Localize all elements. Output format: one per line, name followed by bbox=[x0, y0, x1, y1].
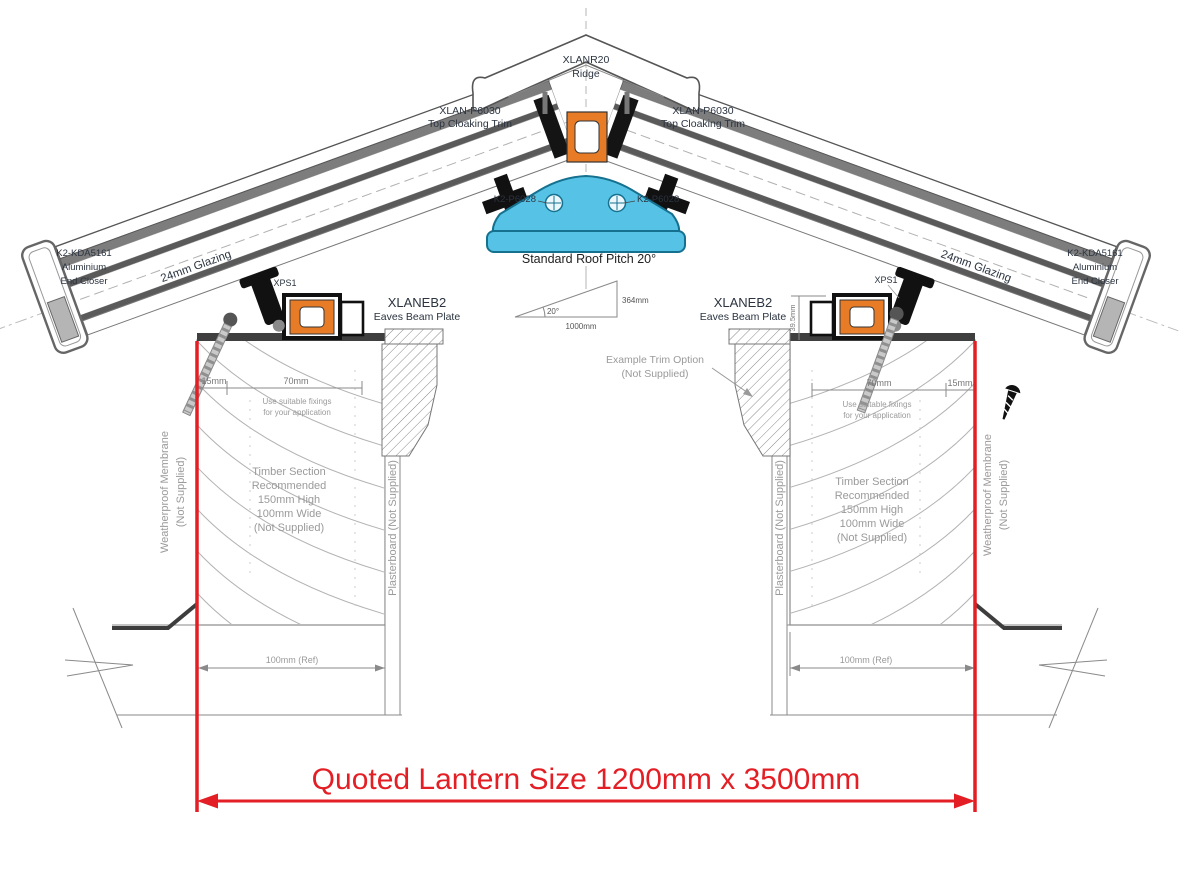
svg-text:Aluminium: Aluminium bbox=[62, 262, 106, 273]
left-cloaking-trim-code: XLAN-P6030 bbox=[439, 105, 500, 117]
ridge-fixing-boss-left bbox=[546, 195, 563, 212]
pitch-angle: 20° bbox=[547, 307, 559, 316]
dim-15-right: 15mm bbox=[947, 378, 972, 388]
dim-right-100mm bbox=[790, 632, 975, 676]
xps1-label-left: XPS1 bbox=[273, 278, 296, 288]
svg-text:K2-KDA5161: K2-KDA5161 bbox=[56, 248, 111, 259]
svg-text:Example Trim Option: Example Trim Option bbox=[606, 354, 704, 366]
svg-text:(Not Supplied): (Not Supplied) bbox=[837, 532, 907, 544]
membrane-label-left: Weatherproof Membrane (Not Supplied) bbox=[159, 431, 187, 553]
svg-text:for your application: for your application bbox=[263, 408, 331, 417]
screw-icon bbox=[996, 383, 1022, 422]
dim-15-left: 15mm bbox=[201, 376, 226, 386]
left-inner-trim bbox=[382, 329, 443, 456]
ridge-fixing-label-right: K2-P6028 bbox=[637, 194, 679, 205]
drawing-canvas: 24mm Glazing 24mm Glazing bbox=[0, 0, 1184, 872]
timber-note-left: Timber Section Recommended 150mm High 10… bbox=[252, 466, 327, 534]
left-eaves-beam-name: Eaves Beam Plate bbox=[374, 311, 461, 323]
svg-text:(Not Supplied): (Not Supplied) bbox=[998, 460, 1010, 530]
svg-text:Weatherproof Membrane: Weatherproof Membrane bbox=[982, 434, 994, 556]
dim-left-100mm bbox=[198, 632, 385, 676]
svg-text:Timber Section: Timber Section bbox=[835, 476, 909, 488]
beam-height-dim-label: 39.5mm bbox=[788, 304, 797, 331]
svg-text:(Not Supplied): (Not Supplied) bbox=[254, 522, 324, 534]
ridge-thermal-break bbox=[567, 112, 607, 162]
lantern-section-drawing: 24mm Glazing 24mm Glazing bbox=[0, 0, 1184, 872]
svg-text:End Closer: End Closer bbox=[61, 276, 108, 287]
pitch-rise: 364mm bbox=[622, 296, 649, 305]
svg-text:K2-KDA5161: K2-KDA5161 bbox=[1067, 248, 1122, 259]
dim-70-right: 70mm bbox=[866, 378, 891, 388]
svg-text:Use suitable fixings: Use suitable fixings bbox=[843, 400, 912, 409]
membrane-label-right: Weatherproof Membrane (Not Supplied) bbox=[982, 434, 1010, 556]
pitch-base: 1000mm bbox=[565, 322, 596, 331]
right-cloaking-trim-name: Top Cloaking Trim bbox=[661, 118, 745, 130]
svg-text:100mm Wide: 100mm Wide bbox=[840, 518, 905, 530]
right-cloaking-trim-code: XLAN-P6030 bbox=[672, 105, 733, 117]
dim-70-left: 70mm bbox=[283, 376, 308, 386]
quoted-size-text: Quoted Lantern Size 1200mm x 3500mm bbox=[312, 763, 861, 796]
svg-text:Recommended: Recommended bbox=[252, 480, 327, 492]
svg-text:(Not Supplied): (Not Supplied) bbox=[175, 457, 187, 527]
svg-text:End Closer: End Closer bbox=[1072, 276, 1119, 287]
svg-text:Timber Section: Timber Section bbox=[252, 466, 326, 478]
left-cloaking-trim-name: Top Cloaking Trim bbox=[428, 118, 512, 130]
membrane-line-right bbox=[975, 604, 1062, 628]
trim-option-label: Example Trim Option (Not Supplied) bbox=[606, 354, 704, 380]
plasterboard-label-left: Plasterboard (Not Supplied) bbox=[387, 460, 399, 596]
ridge-fixing-label-left: K2-P6028 bbox=[494, 194, 536, 205]
left-eaves-beam-code: XLANEB2 bbox=[388, 295, 447, 310]
left-end-closer-label: K2-KDA5161 Aluminium End Closer bbox=[56, 248, 111, 287]
right-eaves-beam-code: XLANEB2 bbox=[714, 295, 773, 310]
pitch-title: Standard Roof Pitch 20° bbox=[522, 252, 656, 266]
svg-text:150mm High: 150mm High bbox=[258, 494, 320, 506]
svg-text:Weatherproof Membrane: Weatherproof Membrane bbox=[159, 431, 171, 553]
pitch-triangle bbox=[515, 266, 617, 317]
xps1-label-right: XPS1 bbox=[874, 275, 897, 285]
ridge-label-name: Ridge bbox=[572, 68, 600, 80]
break-symbol-left bbox=[65, 660, 133, 676]
right-inner-trim bbox=[729, 329, 790, 456]
svg-text:150mm High: 150mm High bbox=[841, 504, 903, 516]
ridge-fixing-boss-right bbox=[609, 195, 626, 212]
right-end-closer-label: K2-KDA5161 Aluminium End Closer bbox=[1067, 248, 1122, 287]
membrane-line-left bbox=[112, 604, 197, 628]
ref-dim-left: 100mm (Ref) bbox=[266, 655, 319, 665]
ridge-label-code: XLANR20 bbox=[563, 54, 610, 66]
ref-dim-right: 100mm (Ref) bbox=[840, 655, 893, 665]
plasterboard-label-right: Plasterboard (Not Supplied) bbox=[774, 460, 786, 596]
svg-text:Aluminium: Aluminium bbox=[1073, 262, 1117, 273]
svg-text:Recommended: Recommended bbox=[835, 490, 910, 502]
timber-note-right: Timber Section Recommended 150mm High 10… bbox=[835, 476, 910, 544]
svg-text:Use suitable fixings: Use suitable fixings bbox=[263, 397, 332, 406]
svg-text:(Not Supplied): (Not Supplied) bbox=[621, 368, 688, 380]
right-eaves-beam-name: Eaves Beam Plate bbox=[700, 311, 787, 323]
svg-text:for your application: for your application bbox=[843, 411, 911, 420]
svg-text:100mm Wide: 100mm Wide bbox=[257, 508, 322, 520]
